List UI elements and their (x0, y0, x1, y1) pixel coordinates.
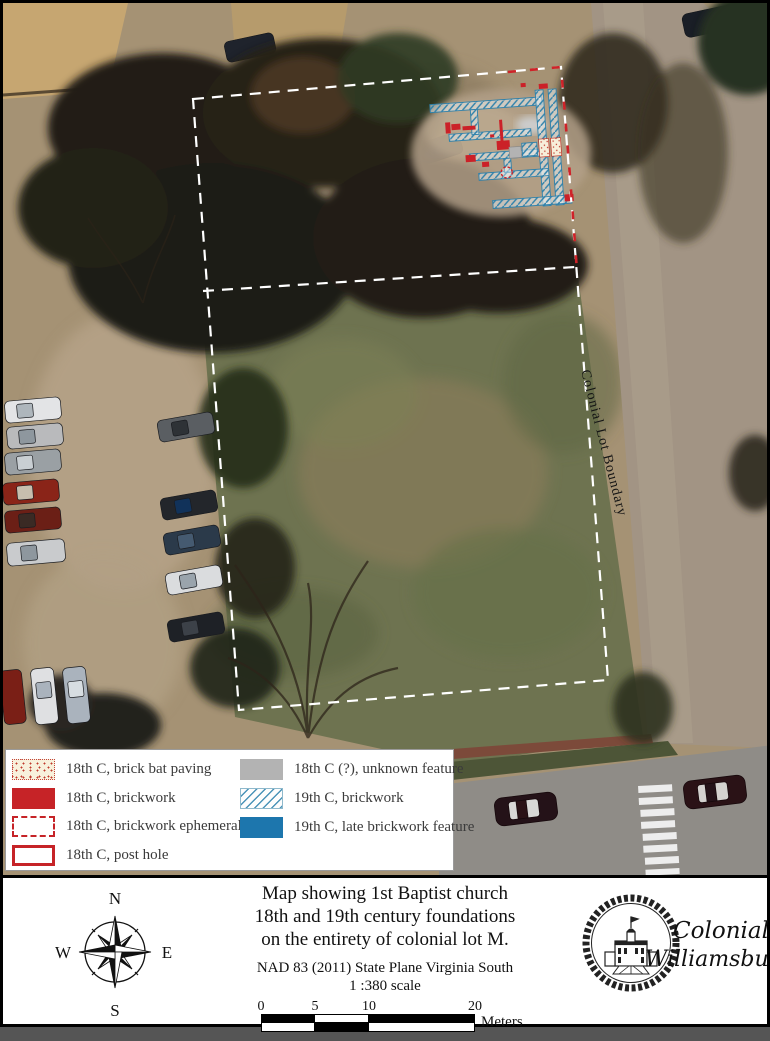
legend-item: 18th C, brickwork ephemeral (12, 813, 240, 842)
legend-label: 19th C, brickwork (294, 790, 404, 807)
scale-tick-0: 0 (258, 999, 265, 1015)
legend-item: 18th C (?), unknown feature (240, 755, 455, 784)
scale-tick-5: 5 (312, 999, 319, 1015)
compass-rose: N E S W (53, 884, 177, 1020)
scale-bar: 0 5 10 20 Met (261, 1001, 475, 1041)
scale-tick-10: 10 (362, 999, 376, 1015)
aerial-photo-canvas: Colonial Lot Boundary (3, 3, 767, 875)
legend-swatch-brickwork-19c (240, 788, 283, 809)
colonial-williamsburg-logo: Colonial Williamsburg (579, 886, 770, 1002)
legend-item: 19th C, brickwork (240, 784, 455, 813)
compass-south-label: S (110, 1001, 119, 1020)
logo-line-1: Colonial (673, 918, 769, 944)
legend-item: 18th C, brickwork (12, 784, 240, 813)
scale-bar-blocks (261, 1014, 475, 1032)
unknown-18c-feature (509, 146, 522, 158)
legend-label: 18th C (?), unknown feature (294, 761, 464, 778)
legend-column-left: 18th C, brick bat paving 18th C, brickwo… (12, 755, 240, 870)
legend-column-right: 18th C (?), unknown feature 19th C, bric… (240, 755, 455, 870)
logo-medallion (586, 898, 676, 988)
legend-label: 18th C, post hole (66, 847, 169, 864)
scale-bar-labels: 0 5 10 20 (261, 1001, 475, 1014)
map-title-line-2: 18th and 19th century foundations (230, 905, 540, 928)
scale-tick-20: 20 (468, 999, 482, 1015)
compass-west-label: W (55, 943, 72, 962)
map-title-column: Map showing 1st Baptist church 18th and … (230, 882, 540, 1041)
legend-label: 18th C, brickwork (66, 790, 176, 807)
brickwork-19c-block (522, 142, 538, 156)
title-block: N E S W Map showing 1st Baptist church 1… (3, 878, 767, 1024)
map-title-line-1: Map showing 1st Baptist church (230, 882, 540, 905)
aerial-background (3, 3, 767, 875)
map-title-line-3: on the entirety of colonial lot M. (230, 928, 540, 951)
legend-item: 19th C, late brickwork feature (240, 813, 455, 842)
legend-label: 18th C, brick bat paving (66, 761, 211, 778)
legend-box: 18th C, brick bat paving 18th C, brickwo… (5, 749, 454, 871)
logo-script-text: Colonial Williamsburg (645, 918, 770, 972)
legend-swatch-late-brickwork-19c (240, 817, 283, 838)
map-sheet: Colonial Lot Boundary 18th C, brick bat … (0, 0, 770, 1027)
compass-east-label: E (162, 943, 172, 962)
legend-swatch-brickwork-18c (12, 788, 55, 809)
scale-bar-unit: Meters (481, 1014, 523, 1031)
legend-label: 19th C, late brickwork feature (294, 819, 474, 836)
aerial-map: Colonial Lot Boundary 18th C, brick bat … (3, 3, 767, 875)
legend-item: 18th C, post hole (12, 841, 240, 870)
legend-swatch-unknown-feature (240, 759, 283, 780)
logo-line-2: Williamsburg (645, 947, 770, 972)
scale-note: 1 :380 scale (230, 978, 540, 995)
compass-north-label: N (109, 889, 121, 908)
legend-swatch-brickwork-ephemeral (12, 816, 55, 837)
legend-swatch-post-hole (12, 845, 55, 866)
datum-note: NAD 83 (2011) State Plane Virginia South (230, 960, 540, 977)
legend-item: 18th C, brick bat paving (12, 755, 240, 784)
legend-label: 18th C, brickwork ephemeral (66, 818, 242, 835)
legend-swatch-brick-bat-paving (12, 759, 55, 780)
